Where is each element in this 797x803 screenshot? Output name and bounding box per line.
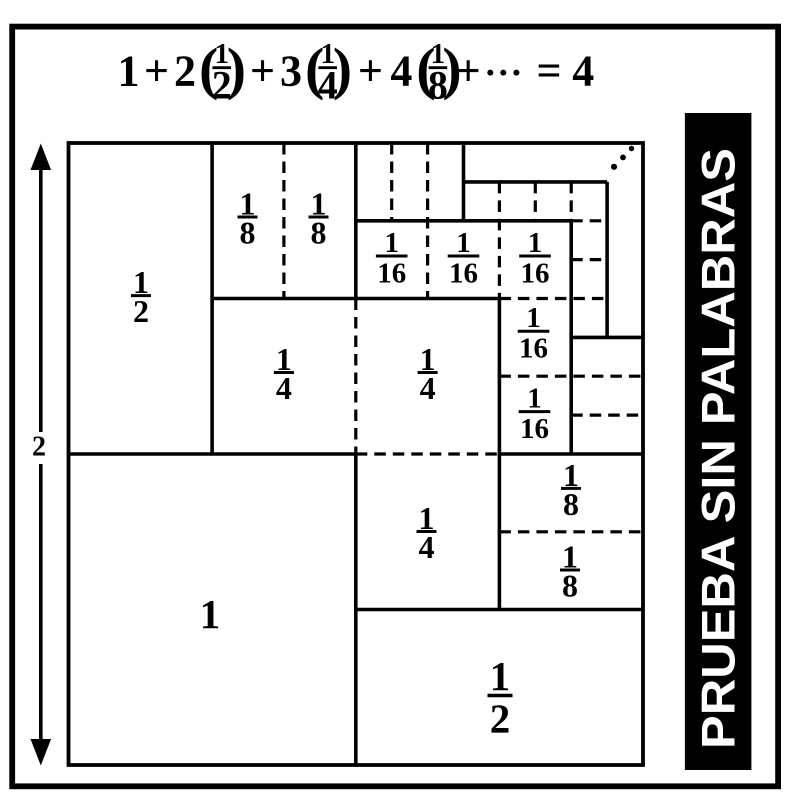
svg-text:8: 8 <box>240 215 256 251</box>
svg-text:2: 2 <box>32 432 46 463</box>
svg-text:+: + <box>358 47 383 96</box>
svg-text:4: 4 <box>390 47 412 96</box>
svg-text:=: = <box>536 47 561 96</box>
svg-text:2: 2 <box>174 47 196 96</box>
svg-text:8: 8 <box>562 568 578 604</box>
svg-text:8: 8 <box>428 63 448 108</box>
svg-text:2: 2 <box>133 293 149 329</box>
svg-text:16: 16 <box>377 258 406 290</box>
svg-text:+: + <box>250 47 275 96</box>
svg-text:4: 4 <box>420 370 436 406</box>
svg-text:16: 16 <box>449 258 478 290</box>
svg-text:8: 8 <box>311 215 327 251</box>
svg-text:PRUEBA SIN PALABRAS: PRUEBA SIN PALABRAS <box>692 148 745 749</box>
svg-text:16: 16 <box>519 333 548 365</box>
svg-text:1: 1 <box>456 227 471 259</box>
svg-text:1: 1 <box>526 302 541 334</box>
svg-text:3: 3 <box>280 47 302 96</box>
svg-text:1: 1 <box>200 591 221 637</box>
svg-text:2: 2 <box>490 696 511 742</box>
svg-text:1: 1 <box>118 47 140 96</box>
svg-text:4: 4 <box>318 63 338 108</box>
svg-text:4: 4 <box>276 370 292 406</box>
svg-text:+: + <box>144 47 169 96</box>
svg-text:1: 1 <box>490 653 511 699</box>
svg-text:4: 4 <box>572 47 594 96</box>
svg-text:16: 16 <box>520 413 549 445</box>
svg-text:8: 8 <box>563 486 579 522</box>
svg-text:1: 1 <box>528 227 543 259</box>
svg-text:2: 2 <box>212 63 232 108</box>
svg-text:16: 16 <box>521 258 550 290</box>
svg-text:4: 4 <box>419 529 435 565</box>
svg-text:1: 1 <box>384 227 399 259</box>
svg-text:1: 1 <box>527 382 542 414</box>
